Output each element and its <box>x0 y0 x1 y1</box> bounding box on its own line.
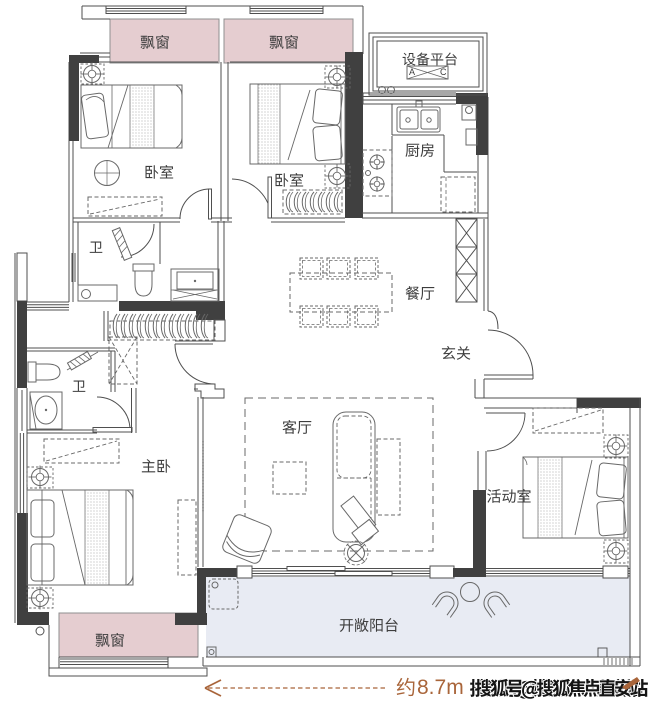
svg-text:C: C <box>440 67 447 77</box>
svg-text:A: A <box>409 67 415 77</box>
svg-text:8.7m: 8.7m <box>417 676 464 699</box>
